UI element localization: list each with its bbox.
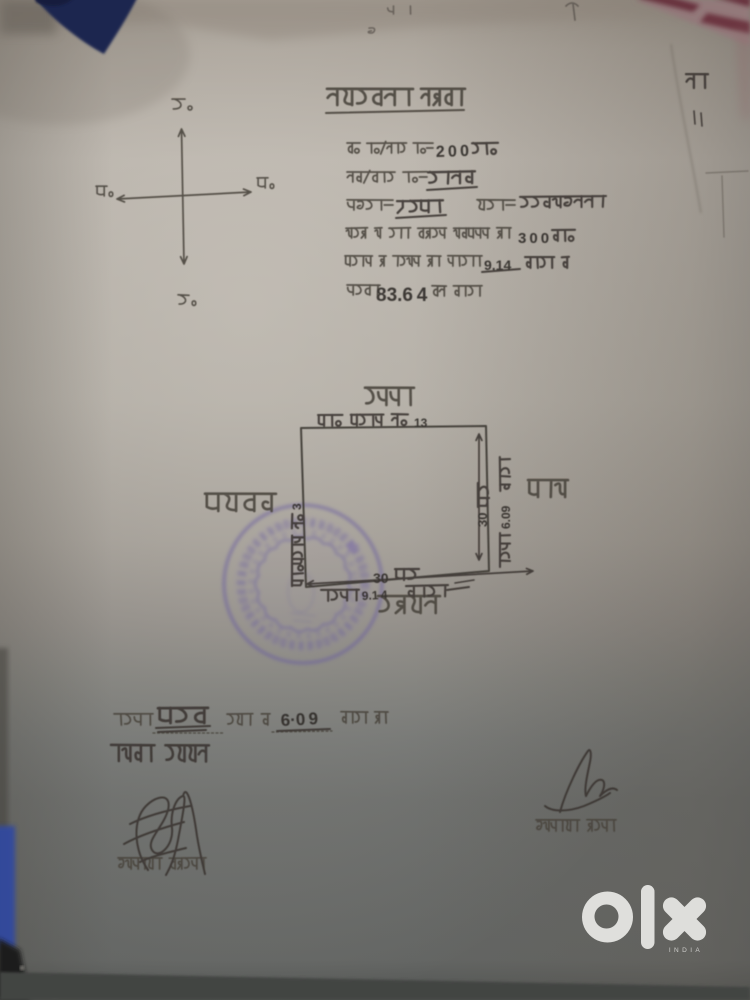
- svg-text:30: 30: [373, 570, 389, 586]
- svg-text:83.6 4: 83.6 4: [376, 285, 428, 306]
- svg-text:3 0 0: 3 0 0: [518, 230, 549, 247]
- svg-text:2 0 0: 2 0 0: [436, 143, 470, 161]
- svg-text:3: 3: [290, 503, 304, 510]
- svg-text:13: 13: [414, 416, 428, 430]
- svg-text:6.09: 6.09: [499, 505, 513, 529]
- svg-text:30: 30: [475, 513, 490, 527]
- svg-text:9.14: 9.14: [484, 257, 511, 273]
- svg-text:9.1 4: 9.1 4: [361, 588, 388, 603]
- svg-text:INDIA: INDIA: [669, 947, 703, 954]
- svg-text:6·0 9: 6·0 9: [280, 709, 318, 730]
